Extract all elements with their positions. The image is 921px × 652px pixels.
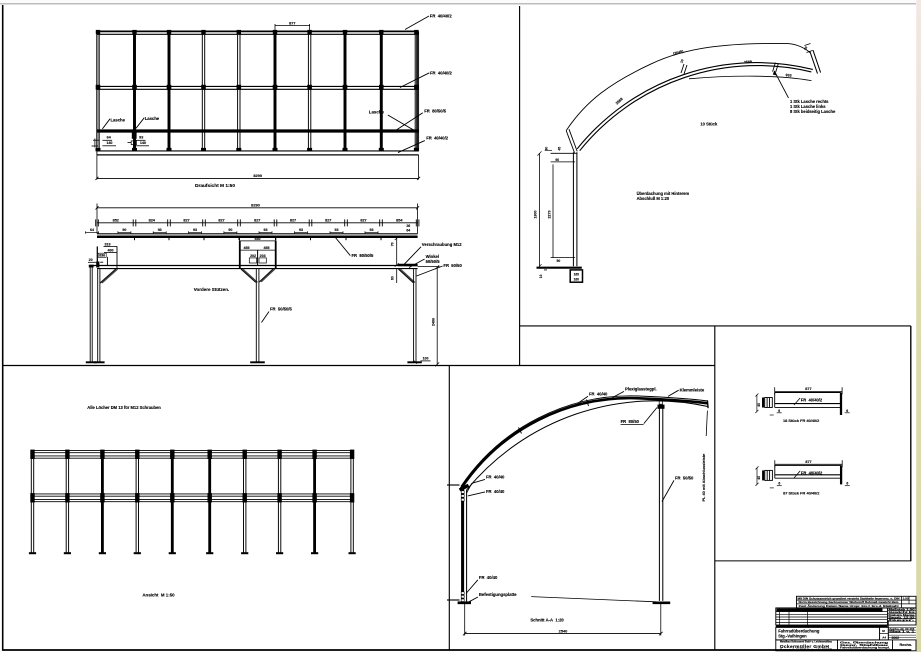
svg-text:Abschluß M 1:20: Abschluß M 1:20 [637,196,670,201]
svg-text:824: 824 [149,219,156,223]
svg-text:Alle Löcher DM 13 für M12 Schr: Alle Löcher DM 13 für M12 Schrauben [87,405,161,410]
svg-text:140: 140 [140,141,146,145]
svg-text:Stg.-Vaihingen: Stg.-Vaihingen [778,634,807,639]
svg-text:90: 90 [544,147,548,151]
svg-text:854: 854 [396,219,403,223]
svg-text:Ansicht M 1:50: Ansicht M 1:50 [142,593,175,598]
svg-text:FR 50/50: FR 50/50 [675,476,694,481]
svg-text:877: 877 [805,460,811,464]
svg-text:Fahrradüberdachung kompl.: Fahrradüberdachung kompl. [840,646,890,650]
svg-text:Lasche: Lasche [369,109,385,114]
svg-text:87 Stück FR 40/40/2: 87 Stück FR 40/40/2 [783,491,820,496]
svg-text:930: 930 [255,237,261,241]
svg-text:FR 50/50: FR 50/50 [443,263,462,268]
svg-text:93: 93 [264,228,268,232]
svg-text:10: 10 [539,274,543,278]
svg-text:FR 40/40: FR 40/40 [589,391,608,396]
svg-text:93: 93 [299,228,303,232]
svg-text:Klemmleiste: Klemmleiste [680,388,705,393]
svg-text:93: 93 [370,228,374,232]
svg-text:455: 455 [264,246,270,250]
svg-text:827: 827 [183,219,189,223]
svg-text:10 Stück: 10 Stück [700,122,718,127]
svg-text:827: 827 [290,219,296,223]
svg-text:93: 93 [158,228,162,232]
svg-text:FR 40/40/2: FR 40/40/2 [430,71,453,76]
svg-text:Metallbau Schlosserei Stahl- u: Metallbau Schlosserei Stahl- u. Leichtme… [780,641,833,644]
svg-text:2589: 2589 [744,60,752,65]
svg-text:FR 40/40/2: FR 40/40/2 [430,14,453,19]
svg-text:8290: 8290 [253,173,262,178]
svg-text:165: 165 [574,272,580,276]
svg-text:Plexiglasstegpl.: Plexiglasstegpl. [625,387,657,392]
svg-text:93: 93 [139,136,143,140]
svg-text:Rechn.: Rechn. [900,643,913,647]
svg-text:Schnitt A-A 1:20: Schnitt A-A 1:20 [530,617,564,622]
svg-text:827: 827 [360,219,366,223]
svg-text:90: 90 [122,228,126,232]
svg-text:70: 70 [390,242,394,246]
svg-text:827: 827 [218,219,224,223]
svg-text:2273: 2273 [548,211,552,219]
svg-text:852: 852 [113,219,119,223]
svg-text:FR 40/40: FR 40/40 [486,475,505,480]
svg-text:40: 40 [757,476,761,480]
svg-text:Blatt 1 v. 1: Blatt 1 v. 1 [889,630,915,633]
svg-text:877: 877 [805,387,811,391]
svg-text:Draufsicht M 1:50: Draufsicht M 1:50 [195,183,235,189]
svg-text:933: 933 [785,73,791,77]
svg-text:8290: 8290 [251,203,260,208]
svg-text:100: 100 [423,357,429,361]
svg-text:455: 455 [244,246,250,250]
svg-text:1:50: 1:50 [903,597,909,601]
svg-text:Zust Änderung Datum Name Urspr: Zust Änderung Datum Name Urspr. Ers.f. E… [799,604,899,608]
svg-text:40: 40 [757,403,761,407]
svg-text:90: 90 [555,158,559,162]
svg-text:8 Stk beidseitig Lasche: 8 Stk beidseitig Lasche [790,109,836,114]
svg-text:6: 6 [778,482,780,486]
svg-text:FR 80/50/5: FR 80/50/5 [424,108,447,113]
svg-text:1900: 1900 [534,211,538,219]
svg-text:60: 60 [390,276,394,280]
svg-text:Vordere Stützen.: Vordere Stützen. [194,287,229,292]
svg-text:Verschraubung M12: Verschraubung M12 [422,242,462,247]
svg-text:2540: 2540 [559,629,568,634]
svg-text:827: 827 [254,219,260,223]
svg-text:140: 140 [106,141,112,145]
svg-text:FR 80/50/5: FR 80/50/5 [352,253,375,258]
svg-text:Norm Bezeichnung Sachnummer We: Norm Bezeichnung Sachnummer Werkstoff Ro… [799,600,900,604]
svg-text:400: 400 [108,249,114,253]
svg-text:FR 40/40/2: FR 40/40/2 [801,398,823,403]
svg-text:FR 40/40/2: FR 40/40/2 [801,470,823,475]
svg-text:FR 50/50/5: FR 50/50/5 [270,307,293,312]
svg-text:Gepr.: Gepr. [889,619,916,622]
svg-text:90: 90 [557,259,561,263]
svg-text:90: 90 [228,228,232,232]
svg-text:FR 40/40: FR 40/40 [486,489,505,494]
svg-text:FR 40/40/2: FR 40/40/2 [426,136,449,141]
svg-text:FR 80/50: FR 80/50 [621,419,640,424]
svg-text:Lasche: Lasche [145,116,160,121]
svg-text:Befestigungsplatte: Befestigungsplatte [479,592,517,597]
svg-text:20: 20 [89,258,93,262]
svg-text:A4: A4 [882,635,886,639]
svg-text:2496: 2496 [432,318,436,326]
svg-text:64: 64 [90,228,94,232]
svg-text:PL 40 mit Abschlussleiste: PL 40 mit Abschlussleiste [701,453,706,502]
svg-text:Musterstraße 12 70563 Stuttgar: Musterstraße 12 70563 Stuttgart Tel 0711… [780,648,833,651]
svg-text:18 Stück FR 40/40/2: 18 Stück FR 40/40/2 [783,418,820,423]
svg-text:827: 827 [325,219,331,223]
svg-text:45: 45 [558,147,562,151]
svg-text:6: 6 [846,482,848,486]
svg-text:160: 160 [574,277,580,281]
svg-text:6: 6 [778,409,780,413]
svg-text:6: 6 [846,409,848,413]
svg-text:Lasche: Lasche [111,117,126,122]
svg-text:877: 877 [289,22,295,26]
svg-text:50/50/5: 50/50/5 [426,259,441,264]
svg-text:M8 DIN Schutzanstrich grundier: M8 DIN Schutzanstrich grundiert verzinkt… [798,596,900,600]
svg-text:93: 93 [193,228,197,232]
svg-text:FR 40/40: FR 40/40 [479,575,498,580]
svg-text:93: 93 [335,228,339,232]
svg-text:64: 64 [406,228,410,232]
svg-text:319: 319 [105,242,111,246]
